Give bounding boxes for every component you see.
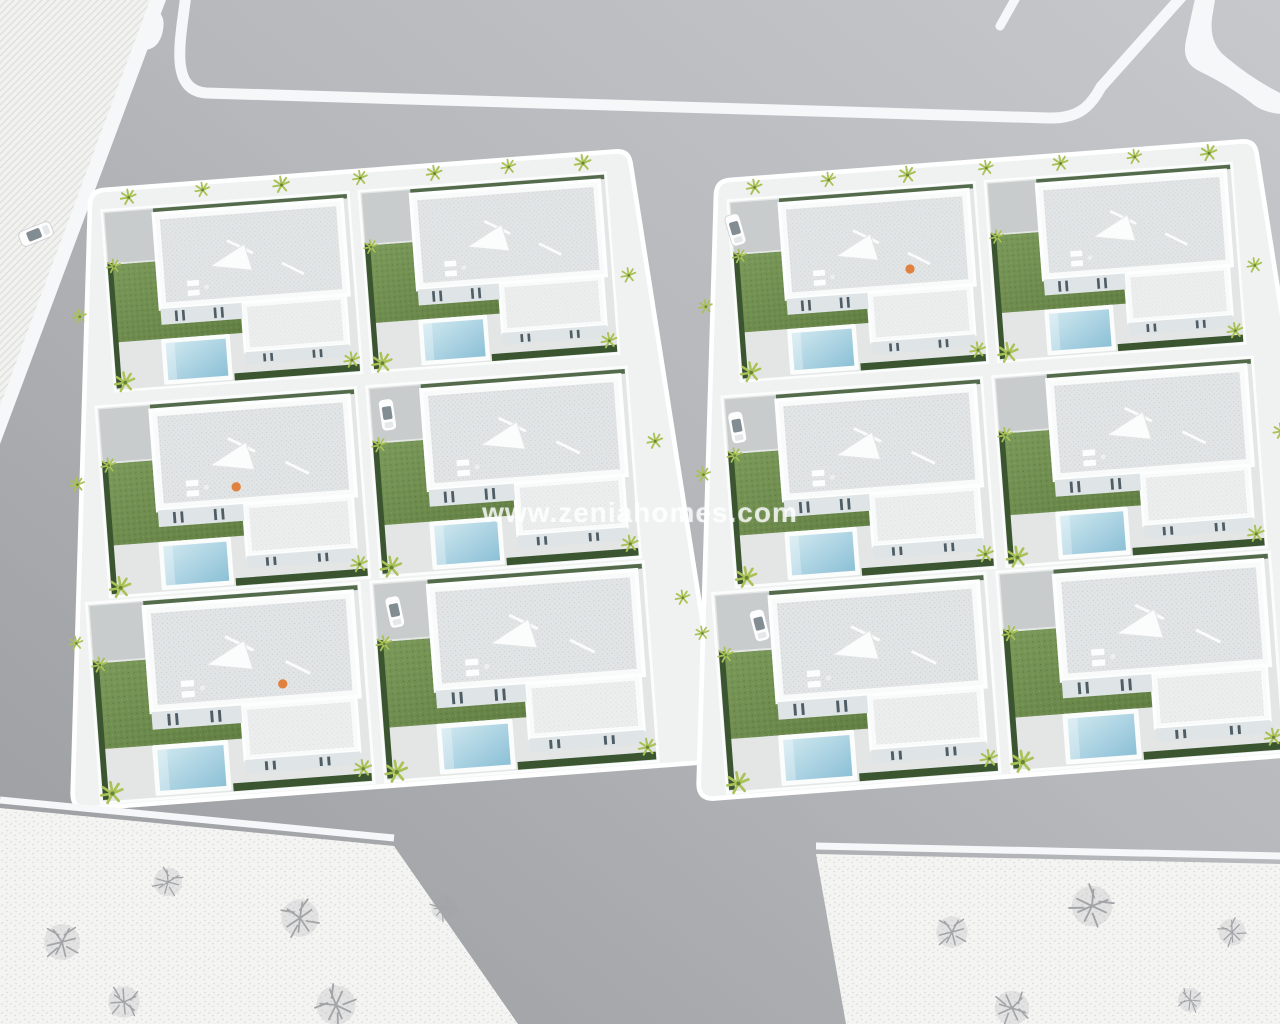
scene-render xyxy=(0,0,1280,1024)
vacant-plot-bottom-right xyxy=(816,846,1280,1024)
villa-block-right xyxy=(654,137,1280,800)
villa-block-left xyxy=(28,147,724,810)
plot-surface xyxy=(816,854,1280,1024)
render-viewport: www.zeniahomes.com xyxy=(0,0,1280,1024)
